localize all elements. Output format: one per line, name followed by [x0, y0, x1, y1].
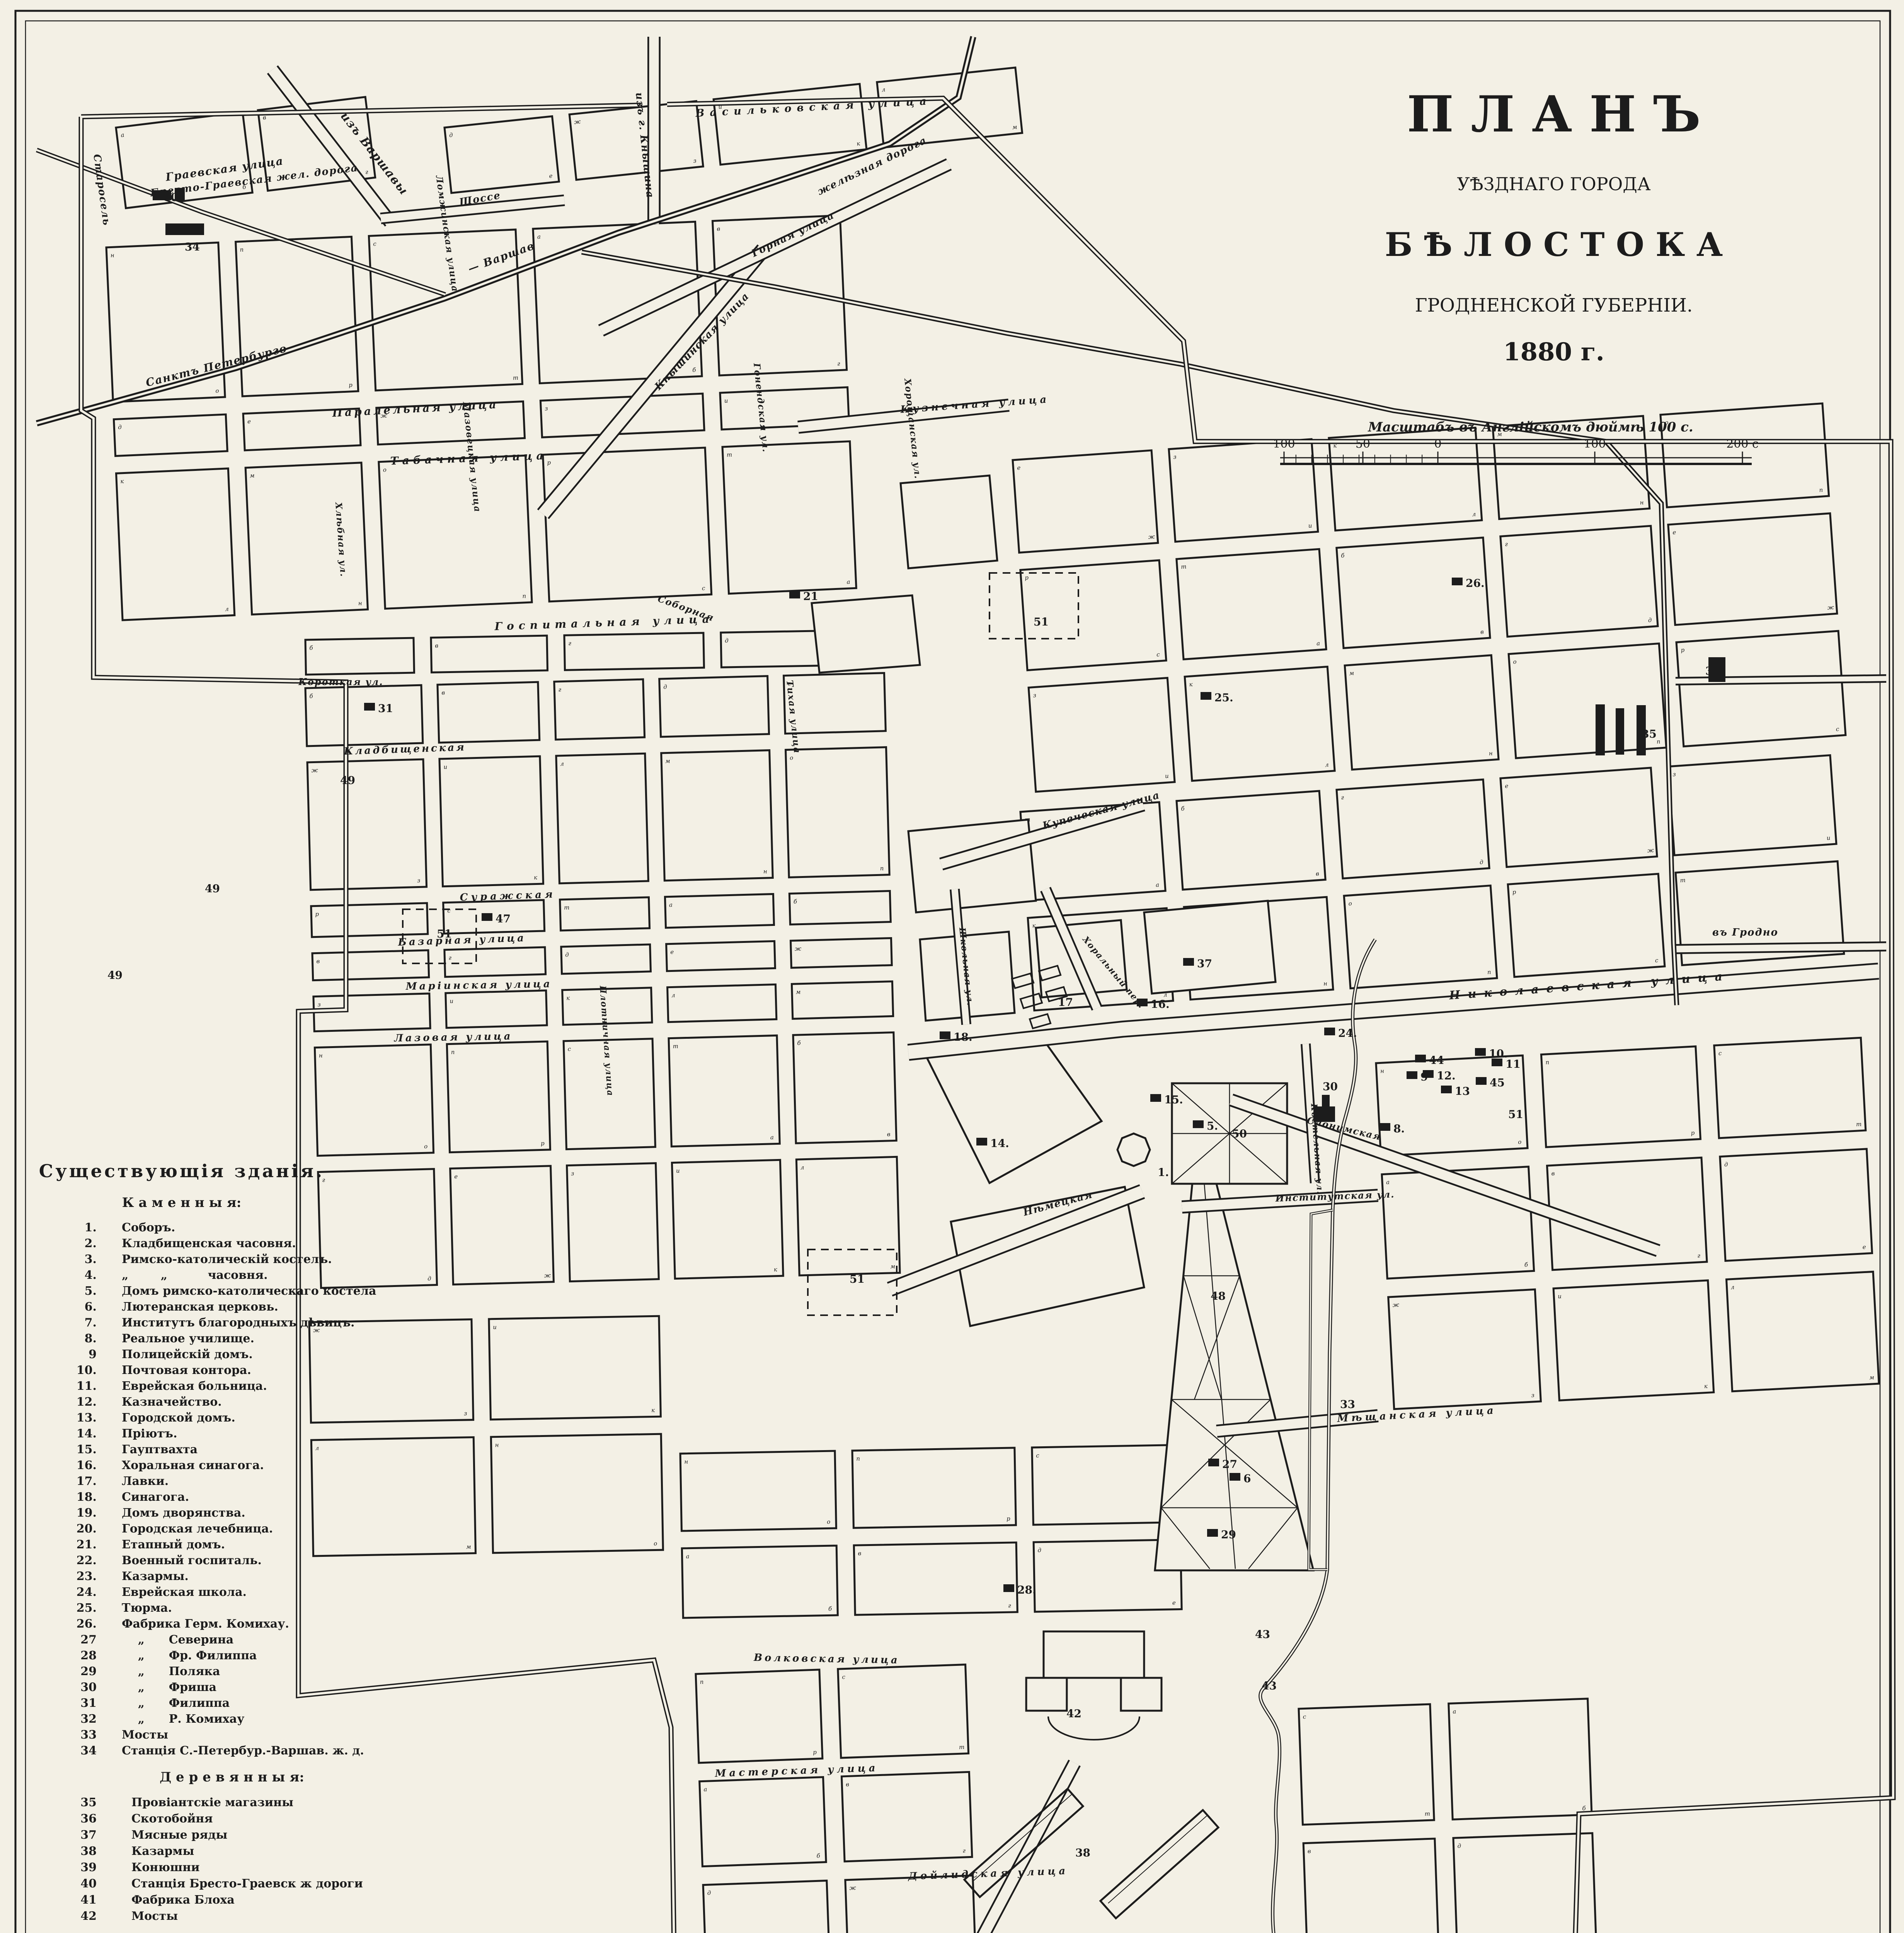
- plot-letter: м: [250, 472, 255, 479]
- legend-item-number: 19.: [77, 1506, 97, 1520]
- city-block: [444, 947, 546, 977]
- legend-item-number: 18.: [77, 1490, 97, 1504]
- city-block: [543, 448, 711, 602]
- plot-letter: м: [1869, 1374, 1874, 1381]
- city-block: [908, 820, 1036, 912]
- building-glyph: [1407, 1071, 1417, 1079]
- plot-letter: б: [816, 1852, 821, 1859]
- plot-letter: н: [111, 252, 115, 259]
- building-glyph: [1423, 1070, 1434, 1078]
- city-block: [845, 1875, 977, 1933]
- legend-item-number: 32: [80, 1712, 97, 1726]
- building-number: 16.: [1151, 998, 1170, 1011]
- plot-letter: т: [1856, 1120, 1862, 1128]
- scale-tick-label: 100: [1584, 437, 1606, 451]
- plot-letter: п: [700, 1678, 703, 1685]
- structure-outline: [1026, 1631, 1161, 1711]
- plot-letter: г: [837, 360, 841, 367]
- building-number: 21: [803, 590, 818, 603]
- building-number: 43: [1255, 1628, 1270, 1641]
- plot-letter: с: [567, 1045, 571, 1052]
- legend-item-number: 30: [80, 1681, 97, 1694]
- legend-item-label: Мосты: [131, 1909, 178, 1923]
- legend-item-label: Мосты: [122, 1728, 168, 1742]
- city-block: [305, 685, 423, 746]
- street-label: Волковская улица: [753, 1652, 900, 1666]
- city-block: [796, 1157, 900, 1275]
- plot-letter: г: [558, 686, 561, 693]
- plot-letter: т: [564, 904, 570, 911]
- building-number: 1.: [1158, 1166, 1169, 1179]
- legend-item-number: 37: [80, 1828, 97, 1842]
- city-block: [854, 1543, 1017, 1615]
- legend-item-number: 13.: [77, 1411, 97, 1425]
- city-block: [696, 1670, 823, 1763]
- legend-item-label: „ Филиппа: [122, 1696, 230, 1710]
- building-number: 51: [850, 1273, 865, 1285]
- plot-letter: д: [1724, 1161, 1728, 1168]
- legend-item-label: Провіантскіе магазины: [131, 1796, 293, 1809]
- city-block: [309, 1319, 473, 1423]
- plot-letter: в: [1308, 1848, 1311, 1855]
- legend-item-label: „ Р. Комихау: [122, 1712, 244, 1726]
- legend-item-label: Гауптвахта: [122, 1443, 198, 1456]
- legend-item-number: 5.: [85, 1284, 97, 1298]
- city-block: [1144, 901, 1276, 994]
- plot-letter: н: [1488, 750, 1493, 757]
- city-block: [791, 938, 892, 968]
- legend-item-label: „ Северина: [122, 1633, 233, 1647]
- legend-item-number: 3.: [85, 1253, 97, 1266]
- legend-item-label: Синагога.: [122, 1490, 189, 1504]
- plot-letter: и: [450, 997, 453, 1004]
- legend-item-label: „ „ часовня.: [122, 1268, 268, 1282]
- plot-letter: с: [842, 1673, 846, 1680]
- building-number: 34: [185, 240, 200, 253]
- building-number: 49: [205, 882, 220, 895]
- city-block: [1177, 549, 1326, 659]
- building-number: 30: [1323, 1080, 1338, 1093]
- legend-item-label: Кладбищенская часовня.: [122, 1237, 296, 1250]
- plot-letter: к: [120, 478, 124, 485]
- city-block: [245, 463, 368, 615]
- map-subtitle-2: ГРОДНЕНСКОЙ ГУБЕРНІИ.: [1415, 293, 1693, 316]
- city-block: [838, 1665, 969, 1758]
- legend-item-number: 29: [80, 1665, 97, 1678]
- legend-item-number: 14.: [77, 1427, 97, 1440]
- building-glyph: [1137, 999, 1148, 1006]
- plot-letter: ж: [1647, 847, 1654, 854]
- building-number: 27: [1222, 1458, 1237, 1471]
- plot-letter: в: [1480, 628, 1484, 636]
- city-block: [446, 990, 547, 1028]
- legend-item-label: Лютеранская церковь.: [122, 1300, 278, 1314]
- legend-section-heading: К а м е н н ы я:: [122, 1195, 242, 1210]
- plot-letter: с: [702, 585, 706, 591]
- plot-letter: д: [663, 684, 667, 690]
- legend-item-number: 27: [80, 1633, 97, 1647]
- city-block: [564, 633, 704, 670]
- legend-item-label: Етапный домъ.: [122, 1538, 225, 1551]
- plot-letter: л: [315, 1445, 319, 1452]
- city-block: [318, 1169, 437, 1288]
- scale-tick-label: 200 с: [1726, 437, 1759, 451]
- plot-letter: т: [959, 1744, 965, 1751]
- plot-letter: м: [890, 1263, 895, 1270]
- plot-letter: а: [1316, 640, 1320, 647]
- building-number: 14.: [990, 1137, 1009, 1150]
- city-block: [567, 1163, 659, 1282]
- city-block: [311, 903, 428, 937]
- city-block: [1553, 1280, 1714, 1401]
- building-footprint: [1596, 704, 1646, 755]
- plot-letter: к: [774, 1266, 777, 1273]
- plot-letter: л: [1730, 1284, 1734, 1290]
- plot-letter: с: [1718, 1050, 1722, 1057]
- legend-item-label: Казармы.: [122, 1570, 189, 1583]
- legend-item-number: 21.: [77, 1538, 97, 1551]
- plot-letter: б: [692, 366, 697, 373]
- legend-item-number: 4.: [85, 1268, 97, 1282]
- plot-letter: р: [1681, 646, 1685, 654]
- plot-letter: и: [676, 1167, 680, 1174]
- building-number: 24.: [1338, 1027, 1357, 1040]
- scale-caption: Масштабъ въ Англійскомъ дюймѣ 100 с.: [1368, 419, 1693, 435]
- legend-item-number: 15.: [77, 1443, 97, 1456]
- plot-letter: м: [466, 1543, 471, 1550]
- building-glyph: [1452, 578, 1463, 585]
- legend-item-number: 12.: [77, 1395, 97, 1409]
- plot-letter: л: [671, 992, 675, 999]
- plot-letter: б: [309, 692, 313, 699]
- city-block: [714, 84, 867, 165]
- building-number: 40: [163, 191, 178, 204]
- city-block: [1714, 1038, 1866, 1138]
- plot-letter: м: [796, 989, 801, 995]
- plot-letter: н: [684, 1458, 688, 1465]
- building-number: 51: [1508, 1108, 1523, 1121]
- plot-letter: в: [435, 642, 438, 649]
- city-block: [560, 897, 650, 931]
- plot-letter: д: [565, 951, 569, 958]
- plot-letter: и: [724, 397, 728, 404]
- map-sheet: абвгдежзиклмнопрстабвгдежзиклмнопрстабвг…: [0, 0, 1904, 1933]
- plot-letter: б: [828, 1605, 832, 1612]
- plot-letter: о: [790, 754, 793, 761]
- legend-section-heading: Д е р е в я н н ы я:: [160, 1769, 304, 1785]
- building-glyph: [1201, 692, 1211, 700]
- city-block: [447, 1042, 550, 1152]
- building-number: 13: [1455, 1085, 1470, 1098]
- plot-letter: м: [1012, 123, 1017, 131]
- city-block: [1345, 655, 1499, 770]
- legend-item-number: 38: [80, 1844, 97, 1858]
- legend-item-number: 8.: [85, 1332, 97, 1345]
- plot-letter: д: [118, 424, 122, 431]
- district: нопрстабвгде: [680, 1445, 1182, 1618]
- map-year: 1880 г.: [1503, 338, 1604, 366]
- city-block: [1727, 1272, 1879, 1391]
- building-number: 49: [340, 774, 355, 787]
- plot-letter: л: [881, 86, 886, 93]
- plot-letter: т: [1424, 1810, 1430, 1817]
- plot-letter: и: [1308, 522, 1312, 529]
- city-block: [680, 1451, 836, 1531]
- legend-item-label: Мясные ряды: [131, 1828, 227, 1842]
- city-block: [1029, 678, 1175, 791]
- plot-letter: п: [1487, 968, 1491, 976]
- plot-letter: г: [448, 954, 451, 961]
- building-number: 44: [1429, 1054, 1444, 1067]
- city-block: [659, 676, 769, 737]
- building-glyph: [482, 913, 492, 921]
- legend-item-number: 23.: [77, 1570, 97, 1583]
- building-number: 25.: [1214, 691, 1233, 704]
- plot-letter: а: [1155, 881, 1159, 888]
- plot-letter: к: [1189, 681, 1193, 688]
- city-block: [1676, 631, 1846, 747]
- plot-letter: е: [1172, 1599, 1176, 1606]
- plot-letter: а: [1453, 1708, 1456, 1715]
- legend-item-number: 33: [80, 1728, 97, 1742]
- plot-letter: з: [464, 1410, 467, 1417]
- legend-item-label: „ Фр. Филиппа: [122, 1649, 257, 1662]
- plot-letter: з: [1033, 692, 1036, 699]
- building-glyph: [1492, 1059, 1502, 1066]
- legend-item-number: 9: [89, 1348, 97, 1361]
- legend-item-number: 7.: [85, 1316, 97, 1330]
- city-block: [1449, 1699, 1592, 1819]
- building-number: 6: [1243, 1472, 1251, 1485]
- city-block: [379, 455, 532, 609]
- building-glyph: [1476, 1077, 1487, 1085]
- scale-tick-label: 0: [1434, 437, 1441, 451]
- legend-item-label: „ Поляка: [122, 1665, 220, 1678]
- city-block: [554, 679, 645, 740]
- city-block: [556, 753, 649, 883]
- plot-letter: в: [316, 958, 320, 965]
- plot-letter: р: [813, 1749, 817, 1756]
- plot-letter: о: [827, 1518, 830, 1525]
- street-label: Хорощанская ул.: [902, 377, 923, 480]
- legend-item-label: Лавки.: [122, 1474, 169, 1488]
- legend-item-label: Полицейскій домъ.: [122, 1348, 253, 1361]
- city-block: [311, 1437, 475, 1556]
- city-block: [443, 900, 545, 934]
- legend-item-label: Соборъ.: [122, 1221, 175, 1234]
- plot-letter: о: [424, 1143, 427, 1150]
- building-glyph: [976, 1138, 987, 1145]
- plot-letter: с: [447, 907, 451, 914]
- plot-letter: и: [1165, 772, 1169, 780]
- city-block: [703, 1880, 831, 1933]
- city-block: [1344, 886, 1497, 989]
- city-block: [789, 891, 891, 925]
- city-block: [1388, 1289, 1541, 1409]
- legend-item-number: 17.: [77, 1474, 97, 1488]
- plot-letter: л: [1472, 511, 1476, 518]
- legend-item-label: Станція Бресто-Граевск ж дороги: [131, 1877, 363, 1890]
- building-glyph: [364, 703, 375, 711]
- city-block: [1177, 791, 1325, 890]
- plot-letter: а: [703, 1786, 707, 1793]
- plot-letter: в: [1551, 1170, 1555, 1177]
- plot-letter: о: [1513, 658, 1517, 665]
- plot-letter: п: [240, 246, 244, 253]
- plan-of-bialystok-1880: абвгдежзиклмнопрстабвгдежзиклмнопрстабвг…: [0, 0, 1904, 1933]
- building-number: 37: [1197, 957, 1212, 970]
- district: ежзиклмнопрстабвгдежзиклмнопрс: [1013, 404, 1846, 792]
- plot-letter: т: [727, 451, 732, 459]
- building-glyph: [1379, 1123, 1390, 1131]
- plot-letter: в: [846, 1781, 850, 1788]
- building-number: 31: [378, 702, 393, 715]
- plot-letter: а: [770, 1134, 774, 1141]
- legend-item-label: „ Фриша: [122, 1681, 216, 1694]
- building-number: 51: [1034, 615, 1049, 628]
- city-block: [431, 636, 548, 672]
- city-block: [1185, 667, 1335, 781]
- plot-letter: н: [495, 1441, 499, 1448]
- plot-letter: р: [1006, 1515, 1010, 1522]
- building-number: 38: [1075, 1846, 1090, 1859]
- plot-letter: з: [1672, 771, 1676, 778]
- street-label: Дойлидская улица: [907, 1865, 1068, 1883]
- map-title: П Л А Н Ъ: [1407, 85, 1701, 143]
- plot-letter: а: [1386, 1179, 1390, 1186]
- plot-letter: с: [373, 240, 377, 247]
- plot-letter: з: [1531, 1392, 1534, 1399]
- building-number: 11: [1505, 1058, 1521, 1070]
- building-number: 5.: [1207, 1120, 1218, 1132]
- legend-item-label: Еврейская школа.: [122, 1585, 247, 1599]
- plot-letter: г: [1008, 1602, 1011, 1609]
- legend-item-number: 35: [80, 1796, 97, 1809]
- plot-letter: р: [349, 382, 353, 389]
- plot-letter: д: [707, 1889, 711, 1896]
- plot-letter: л: [800, 1164, 804, 1171]
- city-block: [1720, 1149, 1872, 1261]
- building-number: 47: [496, 912, 511, 925]
- plot-letter: к: [534, 874, 537, 881]
- plot-letter: ж: [1392, 1301, 1399, 1309]
- building-glyph: [1207, 1529, 1218, 1537]
- map-layers: абвгдежзиклмнопрстабвгдежзиклмнопрстабвг…: [37, 37, 1893, 1933]
- legend-item-label: Городской домъ.: [122, 1411, 235, 1425]
- building-number: 17: [1058, 996, 1073, 1009]
- plot-letter: о: [383, 466, 387, 473]
- building-number: 26.: [1466, 577, 1485, 590]
- plot-letter: з: [571, 1170, 574, 1177]
- city-block: [1299, 1704, 1434, 1825]
- district: стабвгдежзик: [1299, 1699, 1602, 1933]
- district: прстабвгдежзиклмнопр: [696, 1665, 986, 1933]
- plot-letter: ж: [1827, 604, 1834, 611]
- street-label: Короткая ул.: [298, 676, 383, 687]
- plot-letter: в: [1315, 870, 1319, 877]
- structure-outline: [1048, 1717, 1139, 1740]
- city-block: [312, 950, 429, 980]
- plot-letter: а: [686, 1553, 689, 1560]
- city-block: [792, 982, 893, 1019]
- plot-letter: о: [1518, 1139, 1522, 1145]
- legend-item-number: 26.: [77, 1617, 97, 1631]
- plot-letter: а: [846, 578, 850, 585]
- city-block: [700, 1777, 826, 1867]
- plot-letter: д: [725, 637, 729, 644]
- plot-letter: г: [568, 640, 571, 647]
- city-block: [1337, 538, 1490, 648]
- legend-item-label: Конюшни: [131, 1861, 199, 1874]
- district: нопрстабвгдежзиклм: [1376, 1038, 1879, 1409]
- building-glyph: [789, 591, 800, 598]
- plot-letter: п: [1545, 1059, 1550, 1066]
- legend-item-number: 36: [80, 1812, 97, 1826]
- legend-item-number: 31: [80, 1696, 97, 1710]
- legend-item-number: 6.: [85, 1300, 97, 1314]
- city-block: [668, 984, 777, 1022]
- plot-letter: з: [545, 405, 548, 412]
- building-glyph: [1150, 1094, 1161, 1102]
- city-block: [1500, 768, 1657, 867]
- plot-letter: с: [1303, 1713, 1306, 1720]
- plot-letter: в: [858, 1550, 861, 1557]
- city-block: [1508, 874, 1665, 977]
- city-block: [669, 1035, 780, 1146]
- city-block: [1668, 755, 1836, 856]
- building-glyph: [1415, 1055, 1426, 1062]
- building-number: 12.: [1437, 1069, 1456, 1082]
- building-glyph: [1441, 1086, 1452, 1093]
- plot-letter: з: [1173, 453, 1177, 460]
- legend-item-number: 20.: [77, 1522, 97, 1536]
- scale-tick-label: 100: [1273, 437, 1295, 451]
- legend-item-number: 10.: [77, 1364, 97, 1377]
- plot-letter: н: [763, 868, 767, 875]
- plot-letter: т: [1181, 563, 1187, 570]
- city-block: [489, 1316, 661, 1420]
- plot-letter: ж: [574, 118, 581, 126]
- plot-letter: е: [670, 948, 674, 955]
- city-block: [901, 476, 997, 568]
- road: [1674, 946, 1886, 949]
- building-number: 48: [1211, 1290, 1226, 1302]
- plot-letter: п: [1819, 486, 1823, 494]
- legend-item-number: 34: [80, 1744, 97, 1757]
- legend-item-number: 28: [80, 1649, 97, 1662]
- street-label: Госпитальная улица: [494, 612, 714, 633]
- legend-item-number: 25.: [77, 1601, 97, 1615]
- plot-letter: т: [673, 1043, 678, 1050]
- legend-item-label: Институтъ благородныхъ дѣвицъ.: [122, 1316, 354, 1330]
- plot-letter: е: [1862, 1243, 1866, 1250]
- building-glyph: [1324, 1028, 1335, 1035]
- building-glyph: [1475, 1048, 1486, 1056]
- city-block: [1303, 1839, 1439, 1933]
- building-number: 18.: [954, 1031, 972, 1043]
- plot-letter: д: [1037, 1547, 1041, 1554]
- plot-letter: п: [856, 1455, 860, 1462]
- legend-item-label: Военный госпиталь.: [122, 1554, 262, 1567]
- legend-item-number: 2.: [85, 1237, 97, 1250]
- city-block: [1013, 450, 1158, 553]
- legend-item-number: 11.: [77, 1379, 97, 1393]
- building-glyph: [1193, 1120, 1204, 1128]
- legend-item-label: Казначейство.: [122, 1395, 222, 1409]
- city-block: [305, 638, 414, 675]
- building-glyph: [1230, 1473, 1240, 1481]
- city-block: [666, 941, 775, 971]
